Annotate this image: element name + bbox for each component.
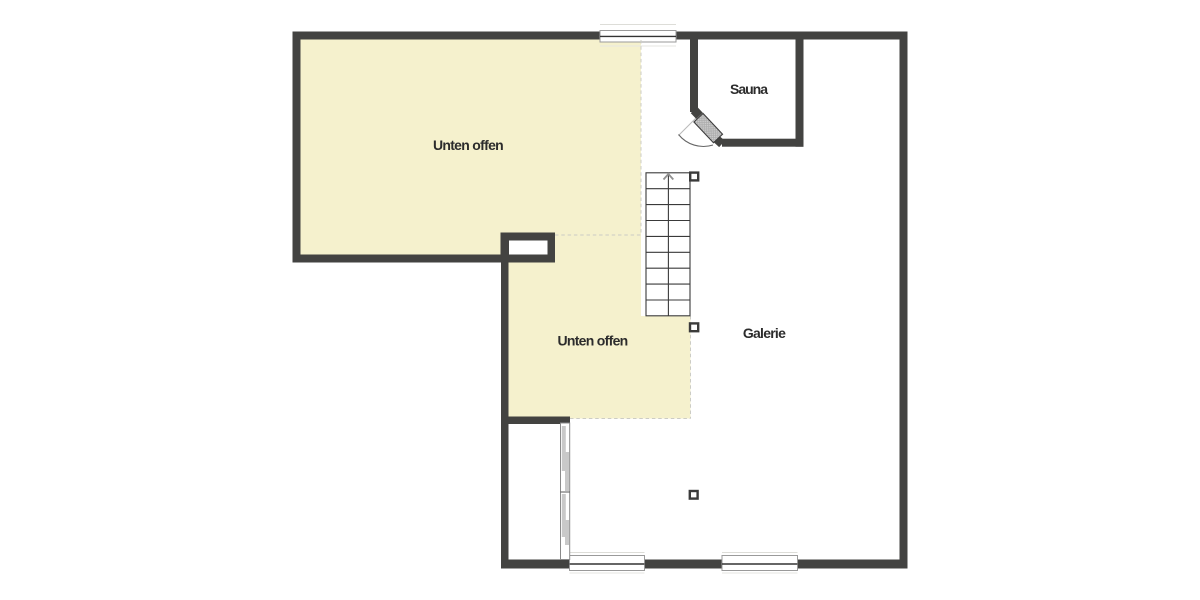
svg-text:Galerie: Galerie bbox=[743, 325, 786, 341]
svg-text:Unten offen: Unten offen bbox=[557, 333, 627, 349]
svg-text:Sauna: Sauna bbox=[730, 81, 768, 97]
svg-text:Unten offen: Unten offen bbox=[433, 137, 503, 153]
